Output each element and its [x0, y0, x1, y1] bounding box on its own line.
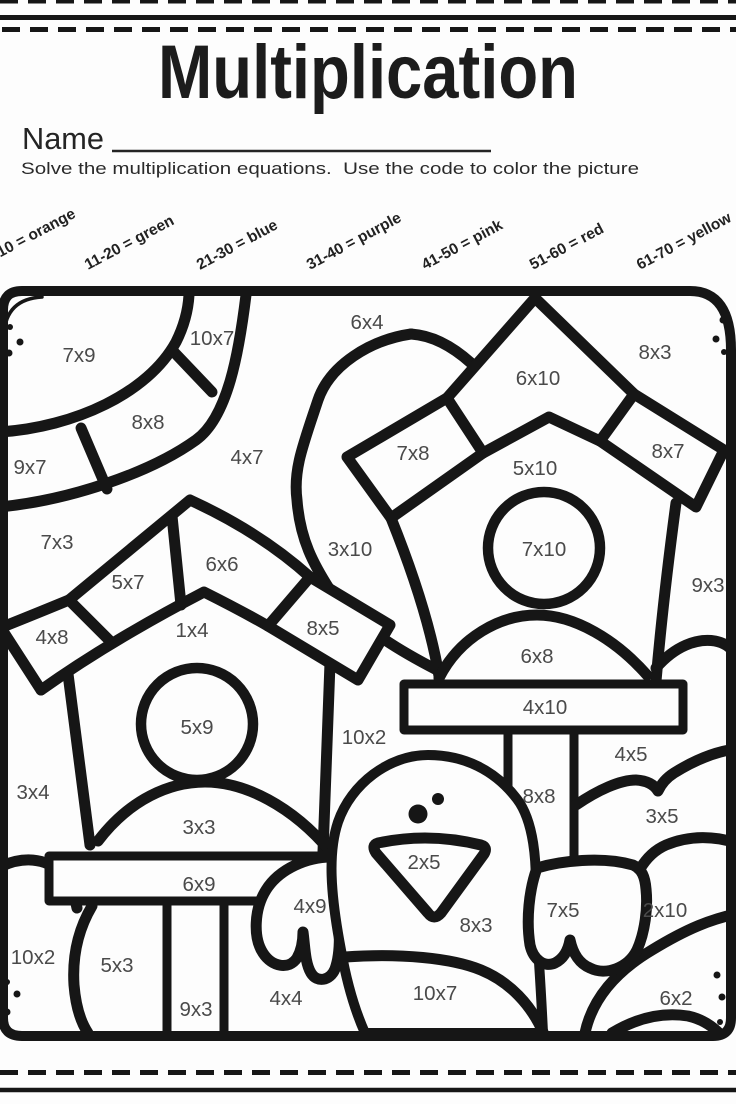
svg-text:Solve the multiplication equat: Solve the multiplication equations. Use …: [21, 160, 639, 178]
svg-text:7x9: 7x9: [62, 344, 95, 367]
svg-text:7x5: 7x5: [546, 899, 579, 922]
svg-text:8x5: 8x5: [306, 617, 339, 640]
svg-text:3x5: 3x5: [645, 805, 678, 828]
svg-text:3x10: 3x10: [328, 538, 372, 561]
svg-text:10x2: 10x2: [11, 946, 55, 969]
svg-text:4x10: 4x10: [523, 696, 567, 719]
svg-text:5x7: 5x7: [111, 571, 144, 594]
svg-text:6x2: 6x2: [659, 987, 692, 1010]
svg-text:7x8: 7x8: [396, 442, 429, 465]
svg-text:8x8: 8x8: [522, 785, 555, 808]
svg-text:8x3: 8x3: [638, 341, 671, 364]
svg-text:5x9: 5x9: [180, 716, 213, 739]
svg-text:8x3: 8x3: [459, 914, 492, 937]
svg-text:2x10: 2x10: [643, 899, 687, 922]
svg-text:7x10: 7x10: [522, 538, 566, 561]
svg-text:10x7: 10x7: [413, 982, 457, 1005]
svg-text:6x10: 6x10: [516, 367, 560, 390]
svg-text:8x7: 8x7: [651, 440, 684, 463]
svg-text:4x4: 4x4: [269, 987, 302, 1010]
svg-text:5x3: 5x3: [100, 954, 133, 977]
svg-text:9x3: 9x3: [691, 574, 724, 597]
svg-text:Multiplication: Multiplication: [158, 30, 578, 115]
svg-text:4x5: 4x5: [614, 743, 647, 766]
svg-text:4x9: 4x9: [293, 895, 326, 918]
svg-text:9x7: 9x7: [13, 456, 46, 479]
svg-text:9x3: 9x3: [179, 998, 212, 1021]
svg-text:6x9: 6x9: [182, 873, 215, 896]
svg-text:6x6: 6x6: [205, 553, 238, 576]
svg-text:8x8: 8x8: [131, 411, 164, 434]
svg-text:4x8: 4x8: [35, 626, 68, 649]
svg-text:6x8: 6x8: [520, 645, 553, 668]
svg-text:3x4: 3x4: [16, 781, 49, 804]
svg-text:1x4: 1x4: [175, 619, 208, 642]
svg-text:10x7: 10x7: [190, 327, 234, 350]
svg-text:6x4: 6x4: [350, 311, 383, 334]
svg-text:3x3: 3x3: [182, 816, 215, 839]
svg-text:Name: Name: [22, 121, 104, 156]
svg-text:10x2: 10x2: [342, 726, 386, 749]
svg-text:4x7: 4x7: [230, 446, 263, 469]
svg-text:5x10: 5x10: [513, 457, 557, 480]
svg-text:7x3: 7x3: [40, 531, 73, 554]
svg-text:2x5: 2x5: [407, 851, 440, 874]
